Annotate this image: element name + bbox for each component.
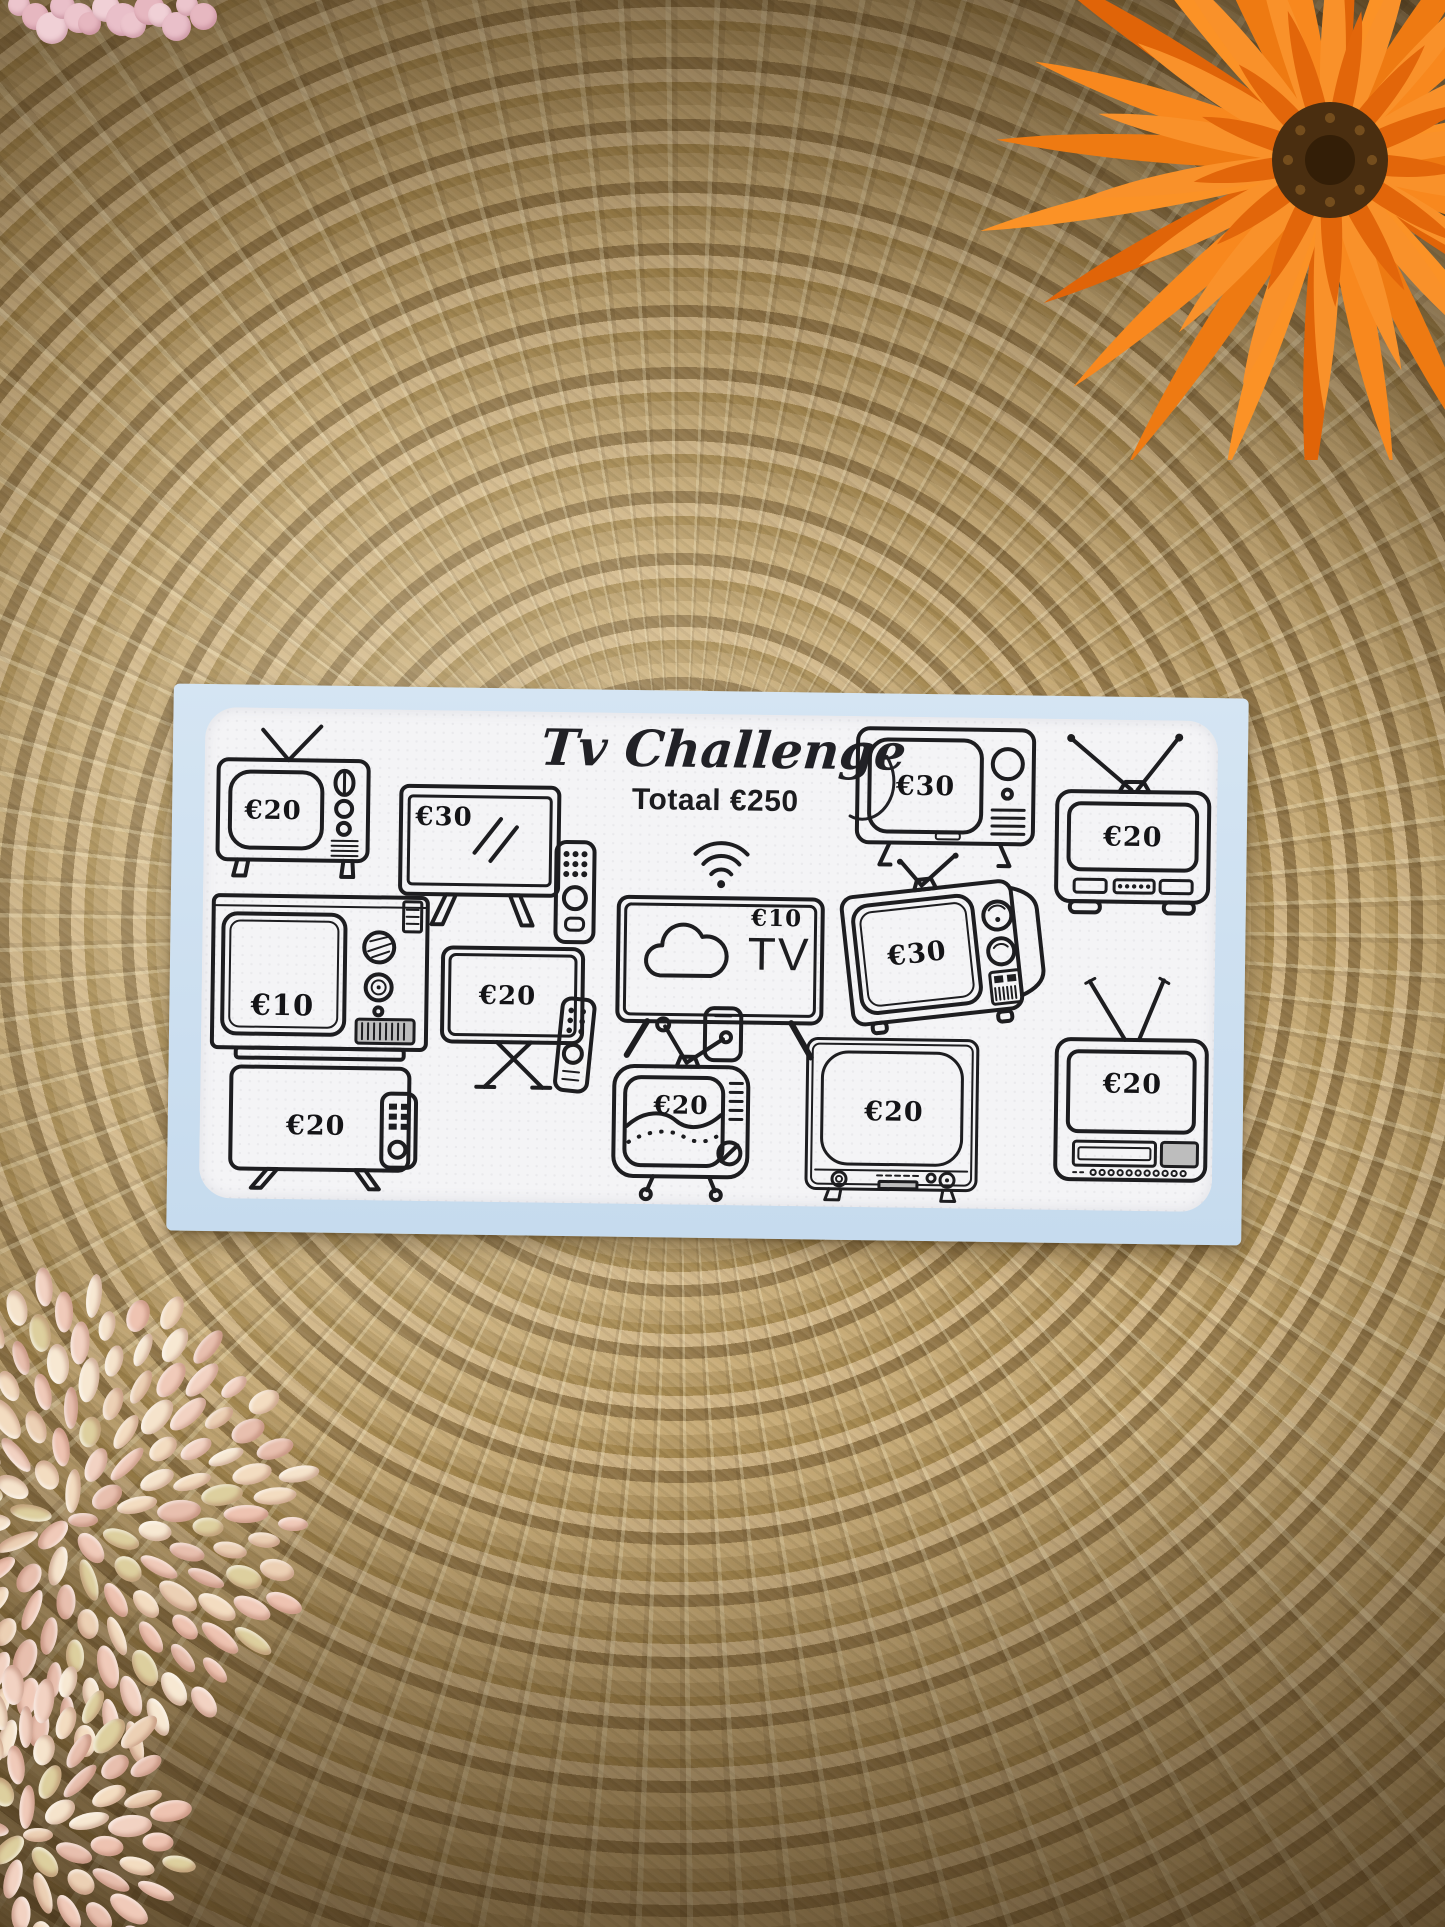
card-subtitle: Totaal €250 [600,782,830,819]
tv-amount: €20 [1069,821,1197,854]
tv-cabinet-drawing [206,883,435,1068]
tv-amount: €20 [1076,1068,1188,1101]
tv-vintage-cabinet: €10 [206,883,435,1068]
tv-amount: €20 [631,1090,731,1120]
tv-monitor-remote: €20 [436,942,600,1094]
tv-amount: €30 [407,802,481,833]
tv-retro-rabbit-ears: €30 [831,843,1060,1050]
tv-portable-v-antenna: €20 [1048,731,1219,933]
tv-vcr-combo: €20 [1047,973,1215,1200]
tv-classic-crt: €20 [801,1033,983,1205]
tv-amount: €20 [255,1110,375,1143]
tv-amount: €10 [222,987,342,1023]
tv-amount: €20 [230,795,316,826]
tv-retro-knobs: €20 [209,717,397,890]
tv-flat-with-remote: €20 [225,1061,427,1192]
savings-challenge-card: Tv Challenge Totaal €250 €20 [166,684,1249,1246]
tv-monitor-drawing [436,942,600,1094]
tv-mini-retro-wave: €20 [605,1014,758,1201]
orange-gerbera-flower [900,0,1445,460]
tv-amount: €20 [447,980,567,1012]
tv-screen-text: TV [746,927,813,982]
tv-amount: €20 [834,1096,954,1129]
card-inner-panel: Tv Challenge Totaal €250 €20 [199,707,1219,1212]
photo-scene: Tv Challenge Totaal €250 €20 [0,0,1445,1927]
tv-amount: €30 [869,770,981,803]
